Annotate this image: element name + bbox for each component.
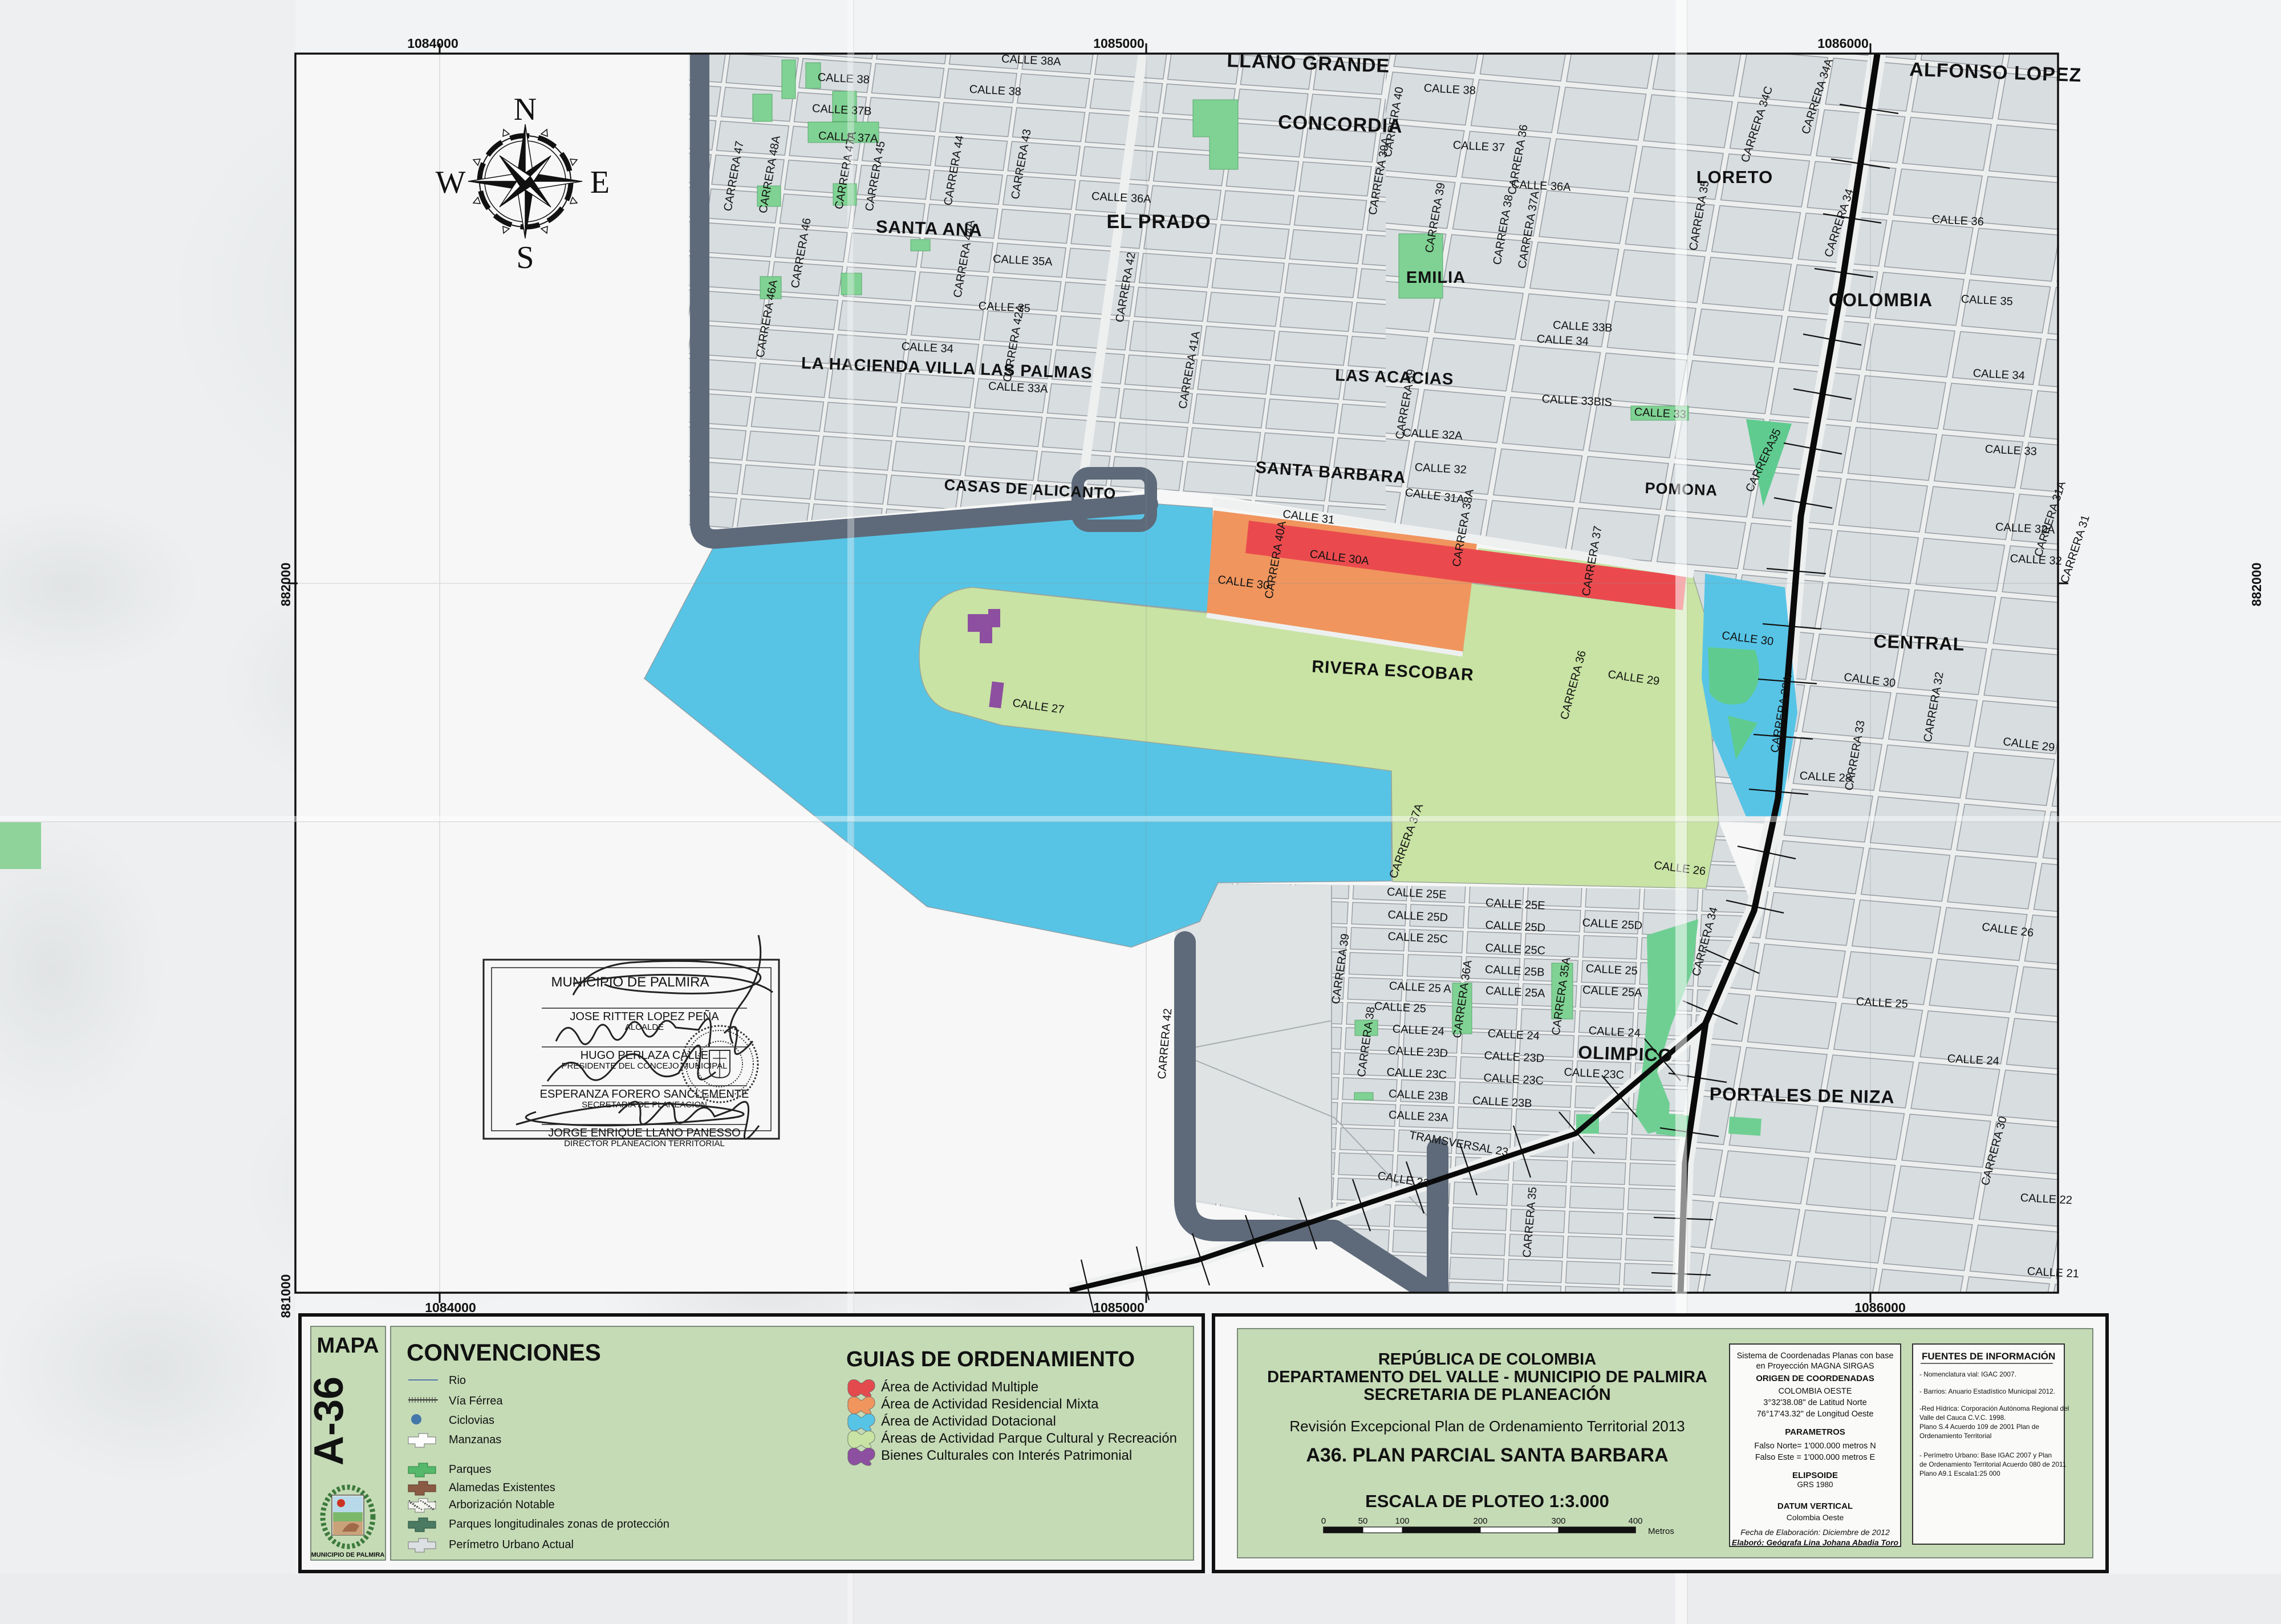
svg-text:Arborización Notable: Arborización Notable bbox=[449, 1499, 555, 1511]
svg-text:ESCALA DE PLOTEO 1:3.000: ESCALA DE PLOTEO 1:3.000 bbox=[1365, 1491, 1609, 1511]
svg-text:PORTALES DE NIZA: PORTALES DE NIZA bbox=[1710, 1083, 1895, 1107]
svg-text:76°17'43.32" de Longitud Oeste: 76°17'43.32" de Longitud Oeste bbox=[1757, 1410, 1874, 1419]
svg-text:- Barrios: Anuario Estadístico: - Barrios: Anuario Estadístico Municipal… bbox=[1919, 1387, 2055, 1395]
svg-text:REPÚBLICA DE COLOMBIA: REPÚBLICA DE COLOMBIA bbox=[1378, 1349, 1596, 1369]
svg-text:OLIMPICO: OLIMPICO bbox=[1578, 1042, 1673, 1066]
svg-text:JOSE RITTER LOPEZ PEÑA: JOSE RITTER LOPEZ PEÑA bbox=[570, 1009, 719, 1023]
svg-text:Colombia Oeste: Colombia Oeste bbox=[1787, 1513, 1844, 1522]
svg-text:PRESIDENTE DEL CONCEJO MUNICIP: PRESIDENTE DEL CONCEJO MUNICIPAL bbox=[562, 1061, 728, 1071]
svg-text:300: 300 bbox=[1551, 1516, 1565, 1526]
svg-text:CONCORDIA: CONCORDIA bbox=[1277, 111, 1403, 137]
svg-text:0: 0 bbox=[1321, 1516, 1326, 1526]
svg-text:1085000: 1085000 bbox=[1093, 1300, 1144, 1315]
svg-text:A36. PLAN PARCIAL SANTA BARBAR: A36. PLAN PARCIAL SANTA BARBARA bbox=[1306, 1444, 1668, 1466]
svg-text:A-36: A-36 bbox=[306, 1377, 352, 1465]
svg-text:200: 200 bbox=[1473, 1516, 1487, 1526]
svg-text:Perímetro Urbano Actual: Perímetro Urbano Actual bbox=[449, 1538, 574, 1551]
svg-text:Área de Actividad Dotacional: Área de Actividad Dotacional bbox=[881, 1414, 1056, 1429]
svg-text:EL PRADO: EL PRADO bbox=[1106, 211, 1211, 233]
svg-text:PARAMETROS: PARAMETROS bbox=[1785, 1427, 1845, 1437]
svg-text:GRS 1980: GRS 1980 bbox=[1797, 1480, 1833, 1489]
svg-text:Plano S.4 Acuerdo 109 de 2001: Plano S.4 Acuerdo 109 de 2001 Plan de bbox=[1919, 1423, 2039, 1431]
svg-text:E: E bbox=[590, 165, 610, 200]
svg-text:MAPA: MAPA bbox=[316, 1334, 379, 1358]
svg-text:Ciclovias: Ciclovias bbox=[449, 1414, 494, 1427]
svg-text:ESPERANZA FORERO SANCLEMENTE: ESPERANZA FORERO SANCLEMENTE bbox=[540, 1088, 749, 1101]
svg-text:-Red Hídrica: Corporación Autó: -Red Hídrica: Corporación Autónoma Regio… bbox=[1919, 1404, 2069, 1412]
svg-text:Vía Férrea: Vía Férrea bbox=[449, 1395, 503, 1407]
svg-text:400: 400 bbox=[1628, 1516, 1642, 1526]
svg-text:Áreas de Actividad Parque Cult: Áreas de Actividad Parque Cultural y Rec… bbox=[881, 1431, 1177, 1446]
svg-text:Bienes Culturales con Interés: Bienes Culturales con Interés Patrimonia… bbox=[881, 1448, 1132, 1463]
svg-text:COLOMBIA: COLOMBIA bbox=[1829, 290, 1933, 310]
svg-text:DATUM VERTICAL: DATUM VERTICAL bbox=[1777, 1501, 1853, 1511]
svg-text:Ordenamiento Territorial: Ordenamiento Territorial bbox=[1919, 1432, 1991, 1440]
svg-text:Metros: Metros bbox=[1648, 1526, 1674, 1536]
svg-text:EMILIA: EMILIA bbox=[1406, 269, 1466, 287]
svg-text:CONVENCIONES: CONVENCIONES bbox=[407, 1339, 601, 1366]
svg-text:Valle del Cauca C.V.C. 1998.: Valle del Cauca C.V.C. 1998. bbox=[1919, 1414, 2006, 1422]
svg-text:100: 100 bbox=[1395, 1516, 1409, 1526]
svg-text:1084000: 1084000 bbox=[425, 1300, 476, 1315]
svg-text:de Ordenamiento Territorial Ac: de Ordenamiento Territorial Acuerdo 080 … bbox=[1919, 1460, 2066, 1468]
svg-text:DEPARTAMENTO DEL VALLE - MUNIC: DEPARTAMENTO DEL VALLE - MUNICIPIO DE PA… bbox=[1267, 1368, 1707, 1386]
svg-text:ORIGEN DE COORDENADAS: ORIGEN DE COORDENADAS bbox=[1756, 1374, 1874, 1383]
svg-text:Manzanas: Manzanas bbox=[449, 1434, 501, 1446]
svg-text:JORGE ENRIQUE LLANO PANESSO: JORGE ENRIQUE LLANO PANESSO bbox=[548, 1127, 741, 1139]
svg-text:Rio: Rio bbox=[449, 1374, 466, 1387]
svg-text:N: N bbox=[514, 92, 537, 127]
svg-text:ELIPSOIDE: ELIPSOIDE bbox=[1792, 1471, 1838, 1480]
svg-text:882000: 882000 bbox=[2249, 563, 2264, 607]
svg-text:GUIAS DE ORDENAMIENTO: GUIAS DE ORDENAMIENTO bbox=[846, 1347, 1135, 1371]
svg-text:SECRETARIA DE PLANEACIÓN: SECRETARIA DE PLANEACIÓN bbox=[1363, 1385, 1610, 1404]
svg-text:Fecha de Elaboración: Diciembr: Fecha de Elaboración: Diciembre de 2012 bbox=[1740, 1528, 1890, 1537]
svg-text:50: 50 bbox=[1358, 1516, 1368, 1526]
svg-text:Plano A9.1 Escala1:25 000: Plano A9.1 Escala1:25 000 bbox=[1919, 1469, 2000, 1477]
svg-text:1086000: 1086000 bbox=[1854, 1300, 1906, 1315]
svg-text:1086000: 1086000 bbox=[1817, 36, 1869, 51]
svg-text:W: W bbox=[436, 165, 466, 200]
svg-text:Elaboró: Geógrafa Lina Johana: Elaboró: Geógrafa Lina Johana Abadia Tor… bbox=[1732, 1538, 1899, 1547]
svg-text:Área de Actividad Residencial: Área de Actividad Residencial Mixta bbox=[881, 1396, 1099, 1412]
svg-text:Área de Actividad Multiple: Área de Actividad Multiple bbox=[881, 1379, 1038, 1395]
svg-text:CENTRAL: CENTRAL bbox=[1873, 631, 1965, 655]
svg-text:MUNICIPIO DE PALMIRA: MUNICIPIO DE PALMIRA bbox=[311, 1552, 385, 1558]
svg-text:3°32'38.08" de Latitud Norte: 3°32'38.08" de Latitud Norte bbox=[1763, 1398, 1866, 1407]
svg-text:Falso Este = 1'000.000 metros: Falso Este = 1'000.000 metros E bbox=[1755, 1453, 1876, 1462]
svg-text:1085000: 1085000 bbox=[1093, 36, 1144, 51]
svg-text:- Perímetro Urbano: Base IGAC: - Perímetro Urbano: Base IGAC 2007 y Pla… bbox=[1919, 1451, 2052, 1459]
svg-text:882000: 882000 bbox=[278, 563, 293, 607]
svg-text:COLOMBIA OESTE: COLOMBIA OESTE bbox=[1779, 1387, 1852, 1396]
svg-text:Sistema de Coordenadas Planas: Sistema de Coordenadas Planas con base bbox=[1737, 1351, 1894, 1361]
svg-text:Parques: Parques bbox=[449, 1463, 492, 1476]
svg-text:Parques longitudinales zonas d: Parques longitudinales zonas de protecci… bbox=[449, 1518, 669, 1530]
svg-text:DIRECTOR PLANEACION TERRITORIA: DIRECTOR PLANEACION TERRITORIAL bbox=[564, 1139, 725, 1148]
svg-text:Alamedas Existentes: Alamedas Existentes bbox=[449, 1481, 555, 1494]
svg-text:881000: 881000 bbox=[278, 1274, 293, 1318]
svg-text:Falso Norte= 1'000.000 metros: Falso Norte= 1'000.000 metros N bbox=[1754, 1442, 1876, 1451]
svg-text:1084000: 1084000 bbox=[407, 36, 458, 51]
svg-text:Revisión Excepcional Plan de O: Revisión Excepcional Plan de Ordenamient… bbox=[1289, 1418, 1685, 1435]
svg-text:en Proyección MAGNA SIRGAS: en Proyección MAGNA SIRGAS bbox=[1756, 1362, 1874, 1371]
svg-text:- Nomenclatura vial: IGAC 200: - Nomenclatura vial: IGAC 2007. bbox=[1919, 1370, 2016, 1378]
svg-text:FUENTES DE INFORMACIÓN: FUENTES DE INFORMACIÓN bbox=[1922, 1351, 2055, 1362]
svg-text:S: S bbox=[516, 240, 534, 275]
